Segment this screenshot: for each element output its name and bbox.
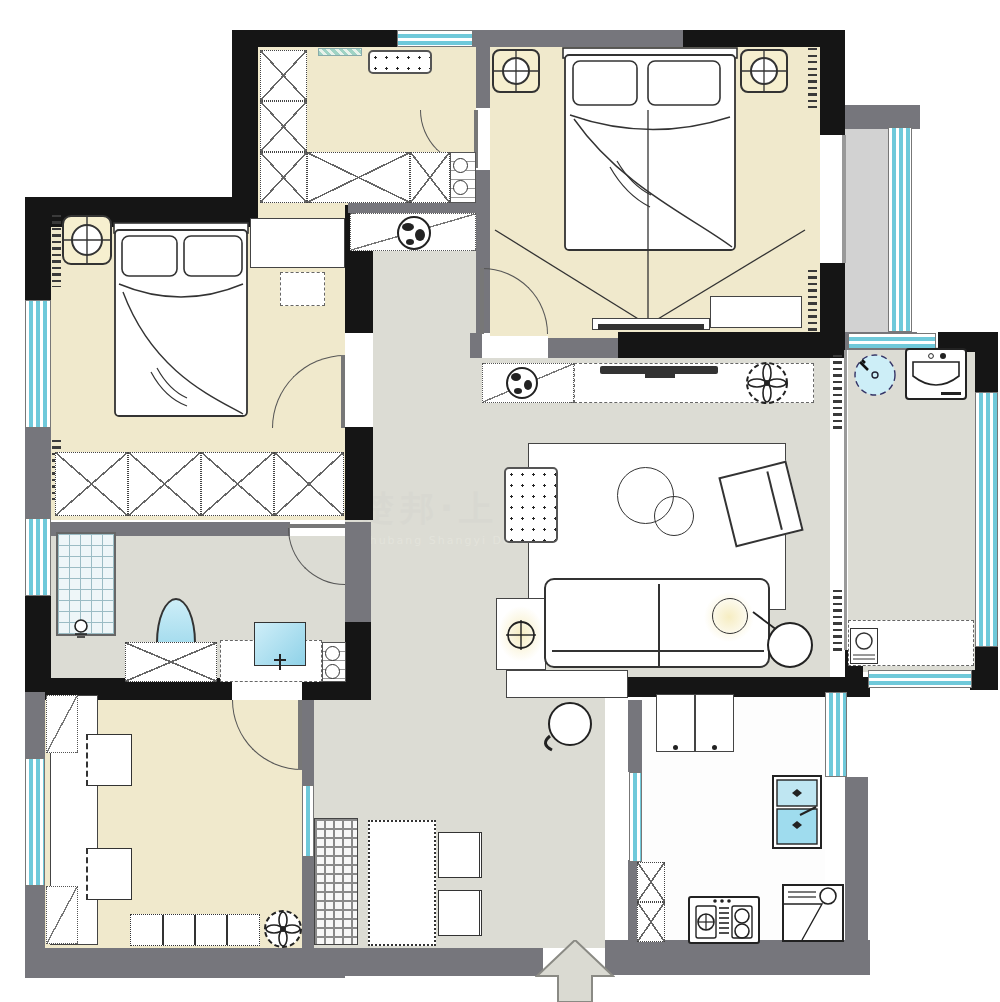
wall-master-south: [618, 332, 845, 358]
curtain-master-top: [808, 48, 817, 108]
wardrobe-closet-col-1: [260, 50, 307, 101]
door-leaf-leftbed: [341, 355, 345, 428]
sofa-seat-divider: [658, 584, 660, 666]
shower-head-bath: [70, 618, 92, 640]
bench-divider-3: [226, 915, 228, 945]
nightstand-lamp-master-right: [740, 49, 788, 93]
shower-utility: [852, 352, 898, 398]
curtain-living-top: [833, 355, 842, 430]
window-closet-top: [397, 30, 473, 47]
chair-study-2: [86, 848, 132, 900]
tv-master: [598, 324, 704, 330]
sideboard-dining: [314, 818, 358, 945]
wall-utility-east-lower: [975, 645, 998, 690]
wall-bath-east-upper: [345, 522, 371, 622]
tv-living: [600, 366, 718, 374]
chair-dining-1: [438, 832, 482, 878]
door-gap-master: [482, 336, 548, 358]
stool-entry: [536, 700, 596, 756]
wall-kitchen-east: [845, 777, 868, 942]
wardrobe-leftbed-1: [55, 452, 128, 516]
washbasin-utility: [905, 348, 967, 400]
wardrobe-leftbed-2: [128, 452, 201, 516]
globe-decor-living: [505, 366, 539, 400]
window-balcony-east: [888, 127, 912, 332]
ac-unit-leftbed: [62, 215, 112, 265]
wall-balcony-top: [845, 105, 920, 129]
floor-lamp-living: [735, 600, 815, 670]
vanity-cabinet-bath: [125, 642, 217, 682]
door-leaf-master: [480, 268, 484, 334]
window-utility-east: [975, 392, 998, 647]
wardrobe-closet-row-2: [307, 152, 410, 203]
door-gap-closet: [476, 108, 490, 170]
window-leftbed: [25, 300, 51, 428]
wall-study-east-upper: [302, 700, 314, 785]
shelf-bath-circle-1: [325, 646, 340, 661]
upper-cabinet-kitchen-1: [656, 694, 695, 752]
curtain-living-bottom: [833, 590, 842, 652]
wall-closet-master-upper: [476, 47, 490, 110]
wall-master-door-post: [470, 333, 482, 358]
faucet-bath: [272, 654, 288, 680]
entry-arrow: [535, 940, 615, 1002]
wardrobe-leftbed-3: [201, 452, 274, 516]
entry-console-living: [506, 670, 628, 698]
wardrobe-closet-row-3: [410, 152, 450, 203]
wall-study-west-upper: [25, 692, 45, 760]
bed-leftbed: [113, 222, 249, 418]
cabinet-knob-2: [712, 745, 717, 750]
wall-top-closet: [232, 30, 397, 47]
wall-kitchen-west-upper: [628, 700, 642, 772]
wall-master-east-upper: [820, 30, 845, 135]
wall-dining-bottom: [345, 948, 543, 976]
sink-kitchen: [782, 884, 844, 942]
chair-study-1: [86, 734, 132, 786]
window-utility-top: [848, 333, 936, 349]
wardrobe-closet-row-1: [260, 152, 307, 203]
sliding-door-kitchen: [629, 772, 642, 862]
window-study: [25, 758, 45, 886]
wall-left-mid: [25, 428, 51, 520]
bench-study: [130, 914, 260, 946]
door-gap-leftbed: [345, 333, 373, 427]
wall-hall-top-thin: [348, 203, 478, 213]
sofa-back-line: [552, 650, 764, 652]
curtain-leftbed-top: [52, 215, 61, 287]
mat-closet: [318, 48, 362, 56]
cabinet-knob-1: [673, 745, 678, 750]
ottoman-living: [504, 467, 558, 543]
plant-study: [262, 908, 304, 950]
stove-kitchen: [688, 896, 760, 944]
chair-dining-2: [438, 890, 482, 936]
door-leaf-bath: [288, 524, 345, 528]
wall-study-bottom: [25, 948, 345, 978]
fridge-kitchen: [772, 775, 822, 849]
tall-cabinet-kitchen-1: [637, 862, 665, 902]
tall-cabinet-kitchen-2: [637, 902, 665, 942]
nightstand-lamp-master-left: [492, 49, 540, 93]
accent-chair-cushion-line: [766, 471, 782, 530]
dresser-master: [710, 296, 802, 328]
slider-track-master-balcony: [842, 135, 846, 263]
globe-decor-hall: [396, 215, 432, 251]
bench-closet: [368, 50, 432, 74]
slider-track-living-utility: [844, 350, 847, 650]
wall-utility-east-upper: [975, 350, 998, 395]
shoe-rack-knob-2: [453, 180, 468, 195]
nightstand-leftbed: [250, 218, 345, 268]
window-bath: [25, 518, 51, 596]
wall-left-upper: [25, 197, 51, 302]
upper-cabinet-kitchen-2: [695, 694, 734, 752]
coffee-table-small: [654, 496, 694, 536]
shelf-bath-circle-2: [325, 664, 340, 679]
master-balcony-floor: [845, 127, 890, 332]
wardrobe-closet-col-2: [260, 101, 307, 152]
wall-master-south-gray: [548, 338, 618, 358]
washer-utility: [850, 628, 878, 664]
wall-top-master-gray: [473, 30, 683, 47]
plant-living: [744, 360, 790, 406]
door-leaf-study: [298, 700, 302, 770]
table-dining: [368, 820, 436, 946]
floor-plan: 楚邦·上 Chubang Shangyi Deco: [0, 0, 1000, 1002]
shoe-rack-knob-1: [453, 158, 468, 173]
bench-divider-1: [162, 915, 164, 945]
wall-closet-west: [232, 30, 258, 227]
glass-partition-study: [302, 785, 314, 857]
window-kitchen-east: [825, 692, 847, 777]
window-utility-bottom: [868, 670, 972, 688]
wall-kitchen-bottom: [605, 940, 870, 975]
dresser-leftbed: [280, 272, 325, 306]
bench-divider-2: [194, 915, 196, 945]
lamp-icon-side-table: [504, 618, 538, 652]
wall-leftbed-east-lower: [345, 425, 373, 520]
wardrobe-leftbed-4: [274, 452, 344, 516]
desk-cabinet-study-top: [46, 695, 78, 753]
tv-stand-living: [645, 374, 675, 378]
desk-cabinet-study-bottom: [46, 886, 78, 944]
